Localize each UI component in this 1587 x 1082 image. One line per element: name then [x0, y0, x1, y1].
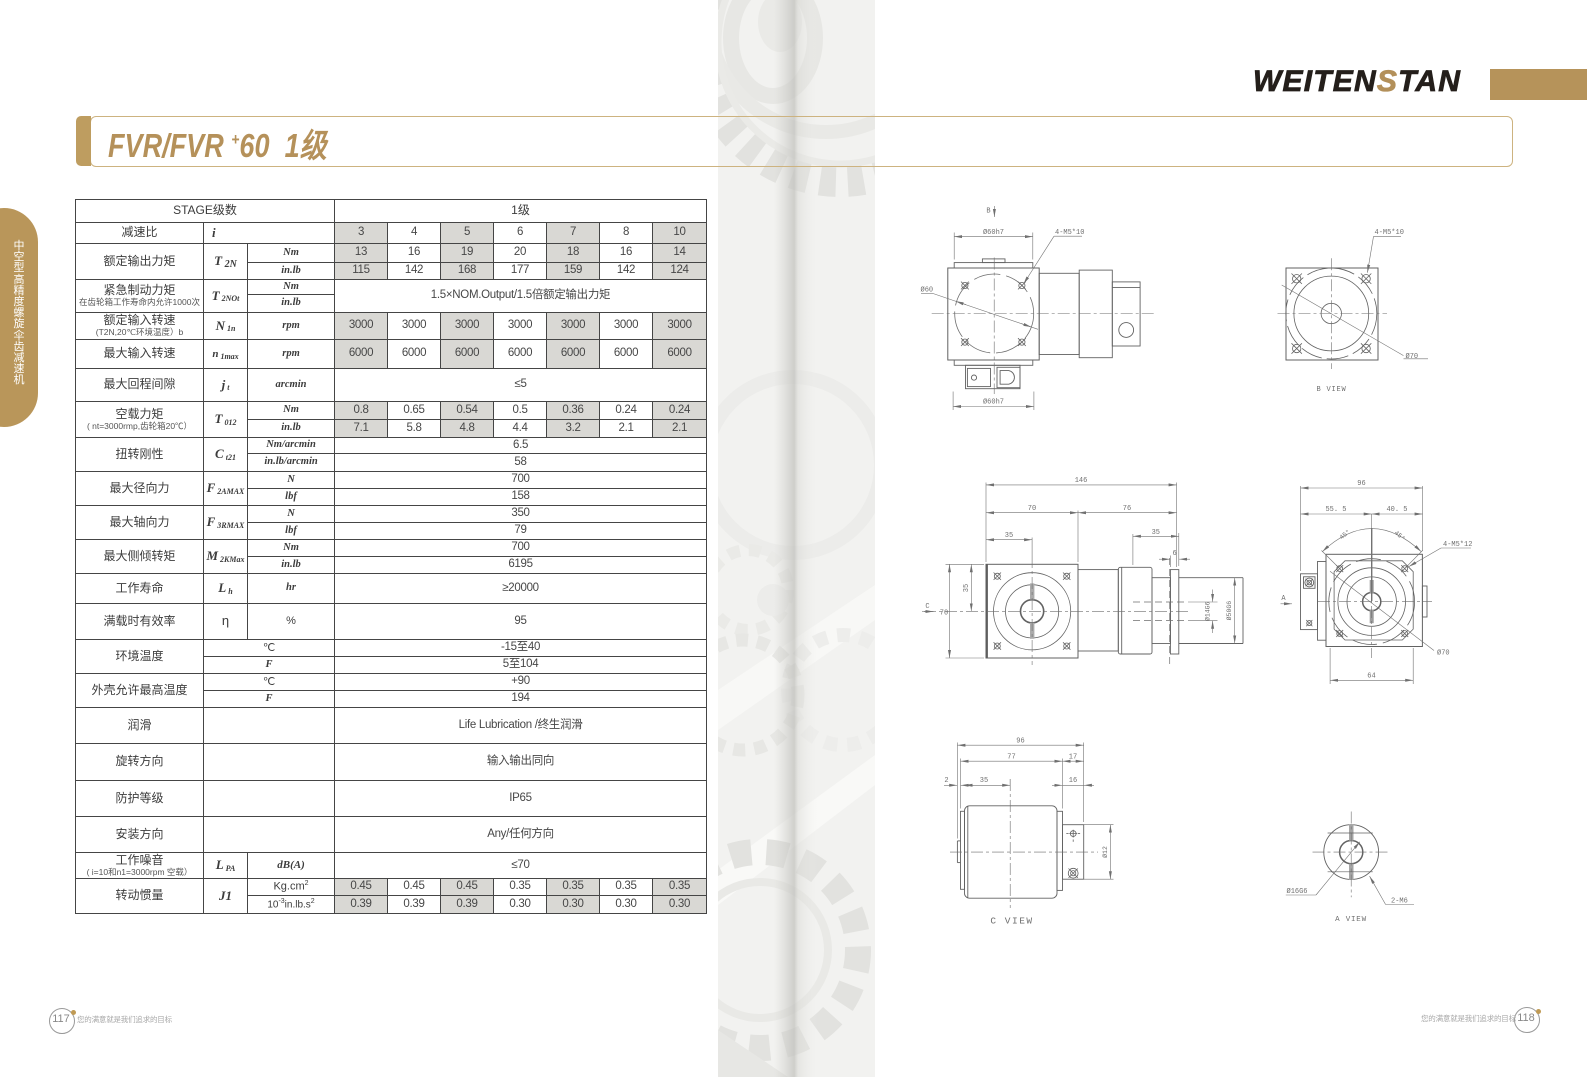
- svg-text:70: 70: [940, 610, 948, 618]
- svg-text:C: C: [925, 603, 929, 611]
- svg-text:Ø70: Ø70: [1406, 352, 1419, 361]
- svg-text:70: 70: [1028, 505, 1036, 513]
- svg-text:55. 5: 55. 5: [1325, 506, 1346, 514]
- svg-text:Ø70: Ø70: [1437, 649, 1450, 658]
- svg-text:A VIEW: A VIEW: [1335, 916, 1367, 924]
- svg-text:35: 35: [1152, 529, 1160, 537]
- svg-text:A: A: [1281, 595, 1286, 603]
- svg-text:76: 76: [1123, 505, 1131, 513]
- svg-text:Ø60h7: Ø60h7: [983, 228, 1004, 237]
- svg-text:17: 17: [1069, 754, 1077, 762]
- svg-text:4-M5*10: 4-M5*10: [1375, 229, 1404, 237]
- svg-text:96: 96: [1357, 480, 1365, 488]
- svg-text:Ø12: Ø12: [1101, 846, 1109, 858]
- svg-text:35: 35: [963, 584, 971, 592]
- svg-text:Ø50G6: Ø50G6: [1225, 601, 1233, 621]
- svg-text:146: 146: [1075, 477, 1088, 485]
- svg-text:35: 35: [1005, 532, 1013, 540]
- svg-text:16: 16: [1069, 777, 1077, 785]
- svg-text:B: B: [986, 208, 990, 216]
- svg-text:Ø14G6: Ø14G6: [1204, 601, 1212, 621]
- svg-text:2-M6: 2-M6: [1391, 898, 1408, 906]
- svg-text:2: 2: [944, 777, 948, 785]
- svg-text:4-M5*10: 4-M5*10: [1055, 229, 1084, 237]
- svg-text:Ø16G6: Ø16G6: [1287, 887, 1308, 896]
- svg-text:64: 64: [1367, 672, 1375, 680]
- svg-text:35: 35: [980, 777, 988, 785]
- svg-text:45°: 45°: [1338, 528, 1352, 542]
- svg-text:Ø60: Ø60: [921, 286, 934, 295]
- svg-text:40. 5: 40. 5: [1386, 506, 1407, 514]
- svg-text:45°: 45°: [1393, 529, 1407, 543]
- svg-text:77: 77: [1007, 754, 1015, 762]
- svg-text:4-M5*12: 4-M5*12: [1443, 541, 1472, 549]
- svg-text:Ø60h7: Ø60h7: [983, 398, 1004, 407]
- svg-text:96: 96: [1016, 738, 1024, 746]
- svg-text:C VIEW: C VIEW: [990, 916, 1033, 927]
- svg-text:B VIEW: B VIEW: [1316, 386, 1346, 394]
- svg-text:6: 6: [1172, 550, 1176, 558]
